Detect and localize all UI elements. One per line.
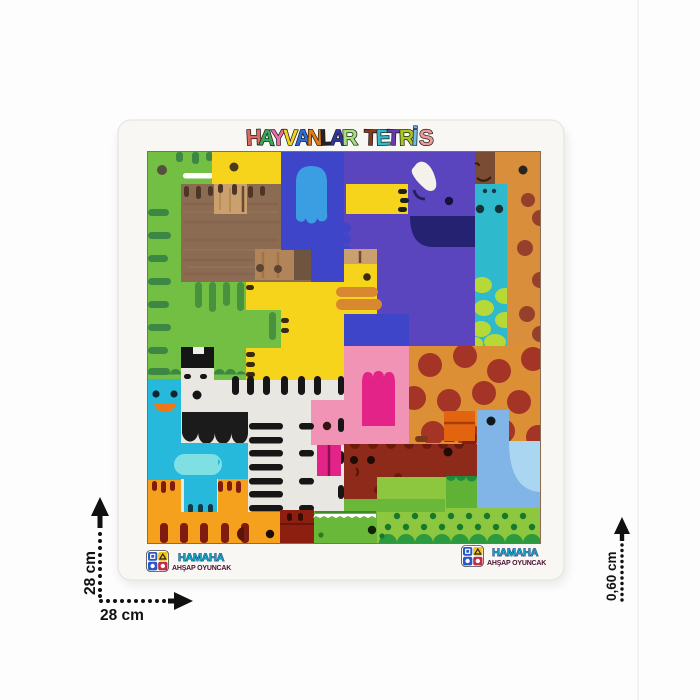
svg-text:HAMAHA: HAMAHA <box>492 547 538 559</box>
svg-text:İ: İ <box>412 125 419 150</box>
svg-text:S: S <box>419 125 435 150</box>
svg-text:28 cm: 28 cm <box>100 607 144 624</box>
svg-text:HAMAHA: HAMAHA <box>178 552 224 564</box>
svg-text:AHŞAP OYUNCAK: AHŞAP OYUNCAK <box>487 560 546 567</box>
svg-text:AHŞAP OYUNCAK: AHŞAP OYUNCAK <box>172 565 231 572</box>
svg-text:28 cm: 28 cm <box>82 551 99 595</box>
svg-text:0,60 cm: 0,60 cm <box>604 551 619 601</box>
svg-text:R: R <box>342 125 359 151</box>
